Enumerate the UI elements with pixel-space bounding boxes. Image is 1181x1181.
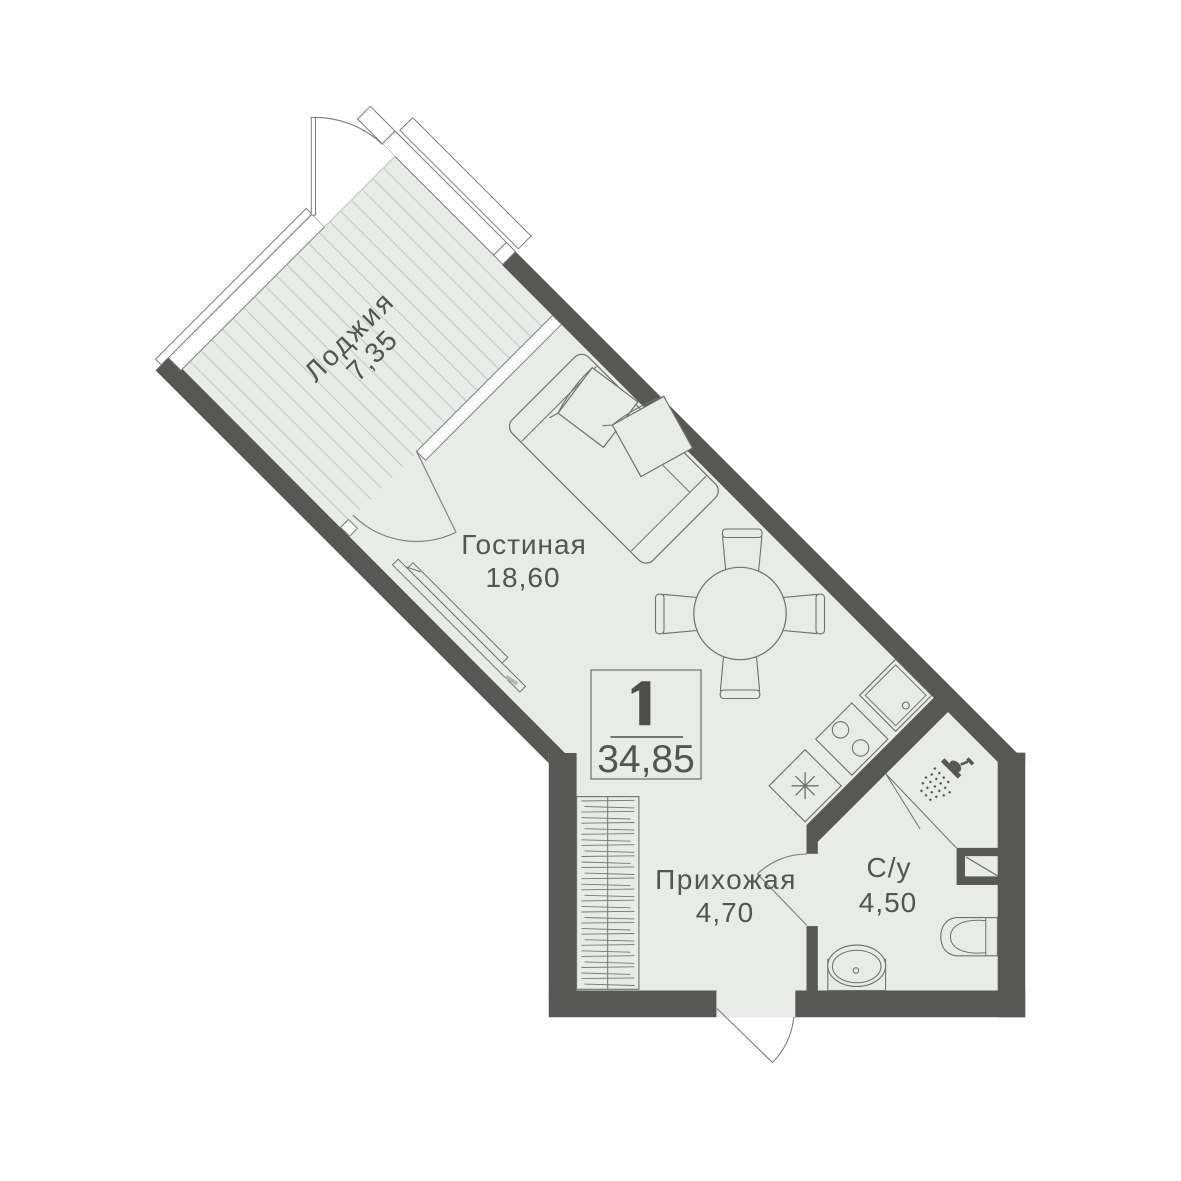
svg-text:4,70: 4,70 <box>696 897 755 928</box>
svg-text:18,60: 18,60 <box>485 562 560 593</box>
svg-text:34,85: 34,85 <box>597 738 695 781</box>
svg-text:С/у: С/у <box>867 852 912 883</box>
svg-text:Гостиная: Гостиная <box>461 529 587 560</box>
svg-text:Прихожая: Прихожая <box>655 864 797 895</box>
svg-text:4,50: 4,50 <box>859 887 918 918</box>
